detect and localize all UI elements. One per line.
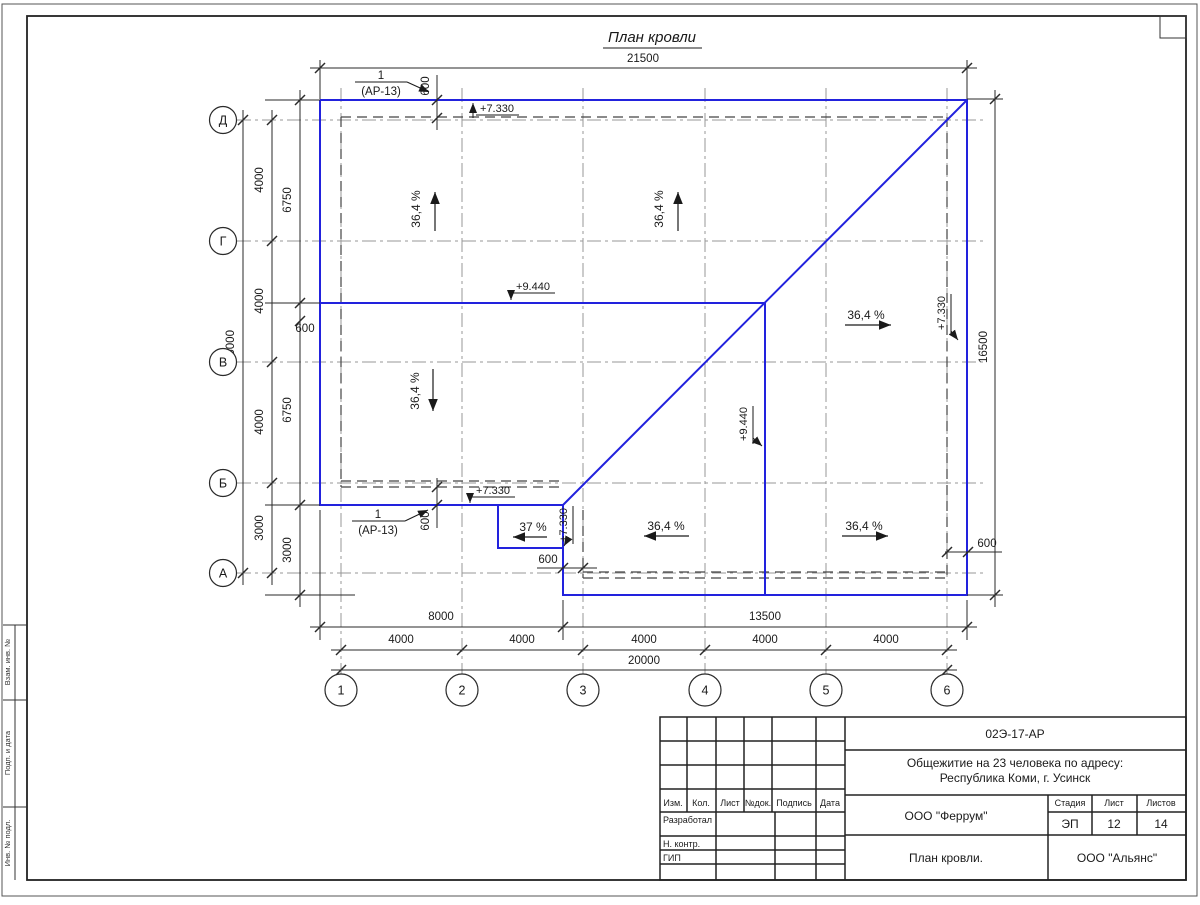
dim-eaves-right: 13500 (749, 611, 781, 623)
dim-bay: 4000 (873, 634, 899, 646)
callout-number: 1 (378, 70, 384, 82)
strip-label: Подп. и дата (3, 730, 12, 775)
client-org: ООО "Альянс" (1077, 851, 1157, 865)
object-name-line2: Республика Коми, г. Усинск (940, 771, 1091, 785)
slope-label: 36,4 % (647, 519, 685, 533)
axis-col-label: 1 (338, 684, 345, 698)
col-header-izm: Изм. (663, 798, 682, 808)
axis-col-label: 6 (944, 684, 951, 698)
dim-right-overall: 16500 (978, 331, 990, 363)
dim-bay: 4000 (752, 634, 778, 646)
frame-corner-box (1160, 16, 1186, 38)
axis-col-label: 5 (823, 684, 830, 698)
axis-col-label: 2 (459, 684, 466, 698)
sheets-total: 14 (1154, 817, 1168, 831)
dim-bay: 4000 (509, 634, 535, 646)
col-header-podpis: Подпись (776, 798, 812, 808)
dim-slope-run: 6750 (282, 187, 294, 213)
col-header-list: Лист (720, 798, 740, 808)
stage-header: Стадия (1055, 798, 1086, 808)
elevation-label: +7.330 (558, 508, 570, 542)
dim-overhang: 600 (295, 323, 314, 335)
dimension-lines (238, 60, 1003, 675)
callout-sheet-ref: (АР-13) (358, 525, 398, 537)
axis-row-label: Г (220, 235, 227, 249)
sheets-header: Листов (1146, 798, 1175, 808)
dim-row: 4000 (254, 288, 266, 314)
axis-bubbles: Д Г В Б А 1 2 3 4 5 6 (210, 107, 964, 707)
elevation-label: +7.330 (476, 485, 510, 497)
elevation-label: +7.330 (936, 296, 948, 330)
dim-overhang: 600 (420, 76, 432, 95)
parapet-dashed-lines (341, 117, 947, 578)
strip-label: Взам. инв. № (3, 639, 12, 685)
dim-slope-run: 3000 (282, 537, 294, 563)
document-code: 02Э-17-АР (985, 727, 1044, 741)
axis-row-label: Д (219, 114, 228, 128)
dim-bay: 4000 (388, 634, 414, 646)
dim-row: 4000 (254, 409, 266, 435)
frame-strip-labels: Взам. инв. № Подп. и дата Инв. № подл. (3, 639, 12, 867)
axis-row-label: А (219, 567, 228, 581)
callout-sheet-ref: (АР-13) (361, 86, 401, 98)
axis-row-label: Б (219, 477, 227, 491)
sheet-number: 12 (1107, 817, 1121, 831)
slope-label: 36,4 % (845, 519, 883, 533)
slope-label: 36,4 % (408, 372, 422, 410)
axis-col-label: 3 (580, 684, 587, 698)
callout-number: 1 (375, 509, 381, 521)
row-label-gip: ГИП (663, 853, 681, 863)
slope-label: 36,4 % (847, 308, 885, 322)
slope-label-small: 37 % (519, 520, 547, 534)
stage-value: ЭП (1061, 817, 1078, 831)
col-header-ndok: №док. (745, 798, 771, 808)
dim-overhang: 600 (538, 554, 557, 566)
dim-overhang: 600 (420, 511, 432, 530)
sheet-title: План кровли. (909, 851, 983, 865)
elevation-label: +9.440 (516, 281, 550, 293)
slope-label: 36,4 % (409, 190, 423, 228)
slope-label: 36,4 % (652, 190, 666, 228)
elevation-label: +7.330 (480, 103, 514, 115)
axis-row-label: В (219, 356, 227, 370)
col-header-kol: Кол. (692, 798, 710, 808)
dim-slope-run: 6750 (282, 397, 294, 423)
drawing-title: План кровли (603, 29, 702, 48)
axis-col-label: 4 (702, 684, 709, 698)
roof-plan-drawing: Взам. инв. № Подп. и дата Инв. № подл. П… (0, 0, 1200, 900)
page-title: План кровли (608, 29, 697, 46)
col-header-data: Дата (820, 798, 840, 808)
row-label-developed: Разработал (663, 815, 712, 825)
dim-overhang: 600 (977, 538, 996, 550)
dim-row: 3000 (254, 515, 266, 541)
dim-eaves-left: 8000 (428, 611, 454, 623)
dim-top-overall: 21500 (627, 53, 659, 65)
dim-row: 4000 (254, 167, 266, 193)
dim-bay: 4000 (631, 634, 657, 646)
title-block: 02Э-17-АР Общежитие на 23 человека по ад… (660, 717, 1186, 880)
dimension-ticks (238, 63, 1000, 675)
row-label-ncontr: Н. контр. (663, 839, 700, 849)
elevation-label: +9.440 (738, 407, 750, 441)
strip-label: Инв. № подл. (3, 820, 12, 867)
sheet-header: Лист (1104, 798, 1124, 808)
design-org: ООО "Феррум" (905, 809, 988, 823)
drawing-sheet: Взам. инв. № Подп. и дата Инв. № подл. П… (0, 0, 1200, 900)
dim-bottom-overall: 20000 (628, 655, 660, 667)
axis-grid (237, 88, 985, 674)
object-name-line1: Общежитие на 23 человека по адресу: (907, 756, 1123, 770)
